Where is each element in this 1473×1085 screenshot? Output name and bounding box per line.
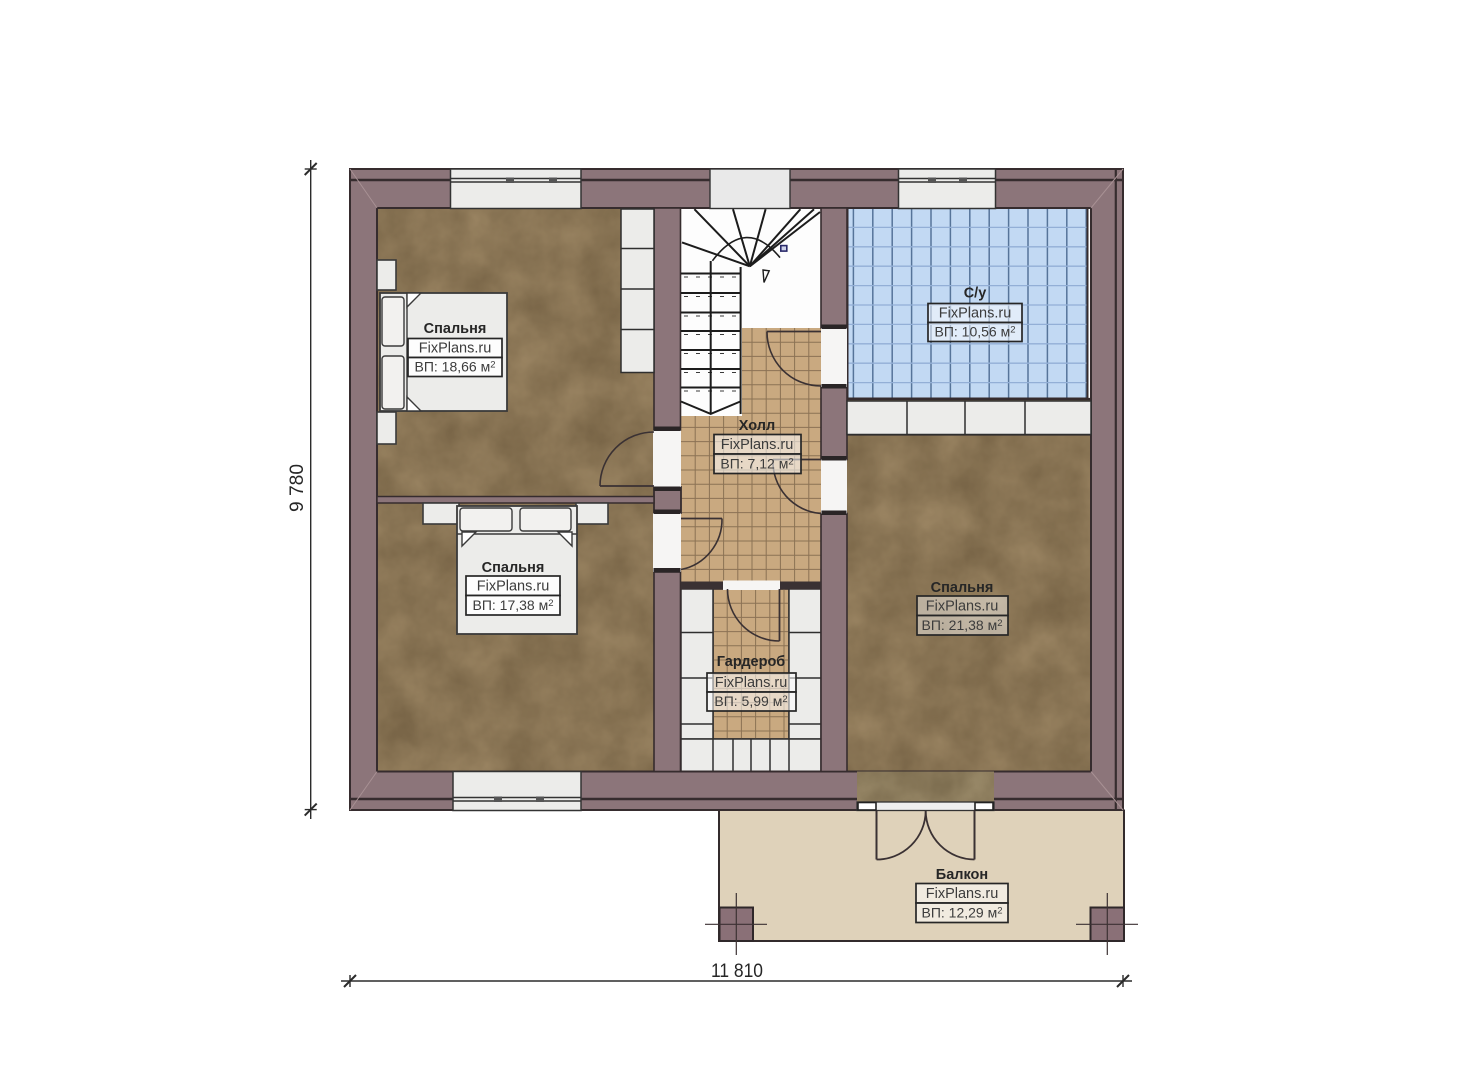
svg-text:Спальня: Спальня — [424, 321, 487, 337]
svg-text:FixPlans.ru: FixPlans.ru — [926, 599, 999, 615]
svg-text:ВП: 21,38 м2: ВП: 21,38 м2 — [921, 617, 1002, 633]
svg-text:ВП: 10,56 м2: ВП: 10,56 м2 — [934, 324, 1015, 340]
svg-text:С/у: С/у — [964, 286, 987, 302]
svg-text:Балкон: Балкон — [936, 867, 988, 883]
svg-text:ВП: 12,29 м2: ВП: 12,29 м2 — [921, 905, 1002, 921]
svg-text:9 780: 9 780 — [287, 464, 308, 512]
svg-text:FixPlans.ru: FixPlans.ru — [939, 306, 1012, 322]
svg-text:ВП: 17,38 м2: ВП: 17,38 м2 — [472, 597, 553, 613]
svg-text:ВП: 7,12 м2: ВП: 7,12 м2 — [720, 456, 793, 472]
svg-text:11 810: 11 810 — [711, 961, 763, 982]
svg-text:Холл: Холл — [739, 418, 775, 434]
svg-text:Спальня: Спальня — [931, 580, 994, 596]
svg-text:FixPlans.ru: FixPlans.ru — [715, 675, 788, 691]
svg-text:Гардероб: Гардероб — [717, 654, 786, 670]
svg-text:Спальня: Спальня — [482, 560, 545, 576]
svg-text:FixPlans.ru: FixPlans.ru — [419, 341, 492, 357]
svg-text:FixPlans.ru: FixPlans.ru — [477, 579, 550, 595]
svg-text:ВП: 18,66 м2: ВП: 18,66 м2 — [414, 359, 495, 375]
svg-text:FixPlans.ru: FixPlans.ru — [926, 886, 999, 902]
svg-text:ВП: 5,99 м2: ВП: 5,99 м2 — [714, 693, 787, 709]
svg-text:FixPlans.ru: FixPlans.ru — [721, 437, 794, 453]
